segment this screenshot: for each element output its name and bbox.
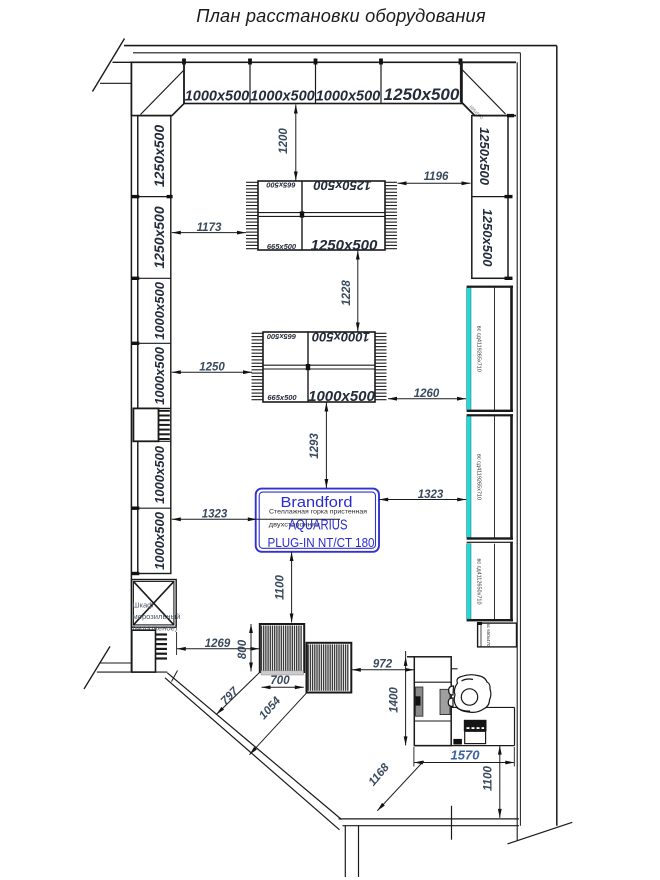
svg-text:1323: 1323 xyxy=(202,509,228,521)
svg-text:1250x500: 1250x500 xyxy=(384,85,460,104)
svg-text:Brandford: Brandford xyxy=(281,495,353,511)
svg-text:1400: 1400 xyxy=(389,687,401,713)
svg-text:1250x500: 1250x500 xyxy=(151,125,167,188)
svg-text:1260: 1260 xyxy=(414,388,440,400)
svg-text:1173: 1173 xyxy=(197,222,222,234)
svg-text:1570: 1570 xyxy=(451,748,481,763)
svg-text:1100: 1100 xyxy=(483,766,495,791)
svg-text:1228: 1228 xyxy=(341,280,353,306)
svg-text:1323: 1323 xyxy=(418,489,444,501)
svg-text:972: 972 xyxy=(373,659,393,671)
svg-text:1000x500: 1000x500 xyxy=(152,346,167,405)
svg-text:1250x500: 1250x500 xyxy=(311,237,378,254)
svg-text:1250x500: 1250x500 xyxy=(477,127,492,186)
svg-text:вс 650х470: вс 650х470 xyxy=(486,623,491,647)
svg-text:665x500: 665x500 xyxy=(267,242,297,251)
svg-text:700: 700 xyxy=(270,675,290,687)
svg-text:1250: 1250 xyxy=(199,362,225,374)
svg-text:1250x500: 1250x500 xyxy=(151,206,167,269)
svg-text:1000x500: 1000x500 xyxy=(311,330,370,345)
svg-text:Шкаф: Шкаф xyxy=(133,601,154,610)
svg-text:1000x500: 1000x500 xyxy=(185,89,250,105)
svg-text:1000x500: 1000x500 xyxy=(250,89,315,105)
svg-text:665x500: 665x500 xyxy=(267,393,297,402)
svg-text:1250x500: 1250x500 xyxy=(313,178,372,193)
svg-text:вс сд4119265х710: вс сд4119265х710 xyxy=(476,454,482,500)
svg-text:1000x500: 1000x500 xyxy=(152,445,167,504)
svg-text:665x500: 665x500 xyxy=(266,181,296,190)
svg-text:665x500: 665x500 xyxy=(266,332,296,341)
svg-text:вс сд4112650х710: вс сд4112650х710 xyxy=(476,558,482,604)
svg-text:1196: 1196 xyxy=(424,171,449,183)
svg-text:1200: 1200 xyxy=(278,128,290,154)
svg-text:1293: 1293 xyxy=(309,433,321,459)
svg-text:1000x500: 1000x500 xyxy=(152,281,167,340)
svg-text:морозильный: морозильный xyxy=(133,612,181,621)
svg-text:вс сд4119265х710: вс сд4119265х710 xyxy=(476,326,482,372)
svg-text:1000x500: 1000x500 xyxy=(152,511,167,570)
svg-text:1100: 1100 xyxy=(275,575,287,600)
svg-text:1250x500: 1250x500 xyxy=(480,209,495,268)
svg-text:800: 800 xyxy=(237,639,249,659)
svg-text:PLUG-IN NT/CT 180: PLUG-IN NT/CT 180 xyxy=(268,535,375,550)
svg-text:1000x500: 1000x500 xyxy=(308,388,375,405)
svg-text:План расстановки оборудования: План расстановки оборудования xyxy=(196,6,486,26)
svg-text:1269: 1269 xyxy=(205,638,231,650)
svg-text:1000x500: 1000x500 xyxy=(316,89,381,105)
svg-text:AQUARIUS: AQUARIUS xyxy=(289,518,348,534)
